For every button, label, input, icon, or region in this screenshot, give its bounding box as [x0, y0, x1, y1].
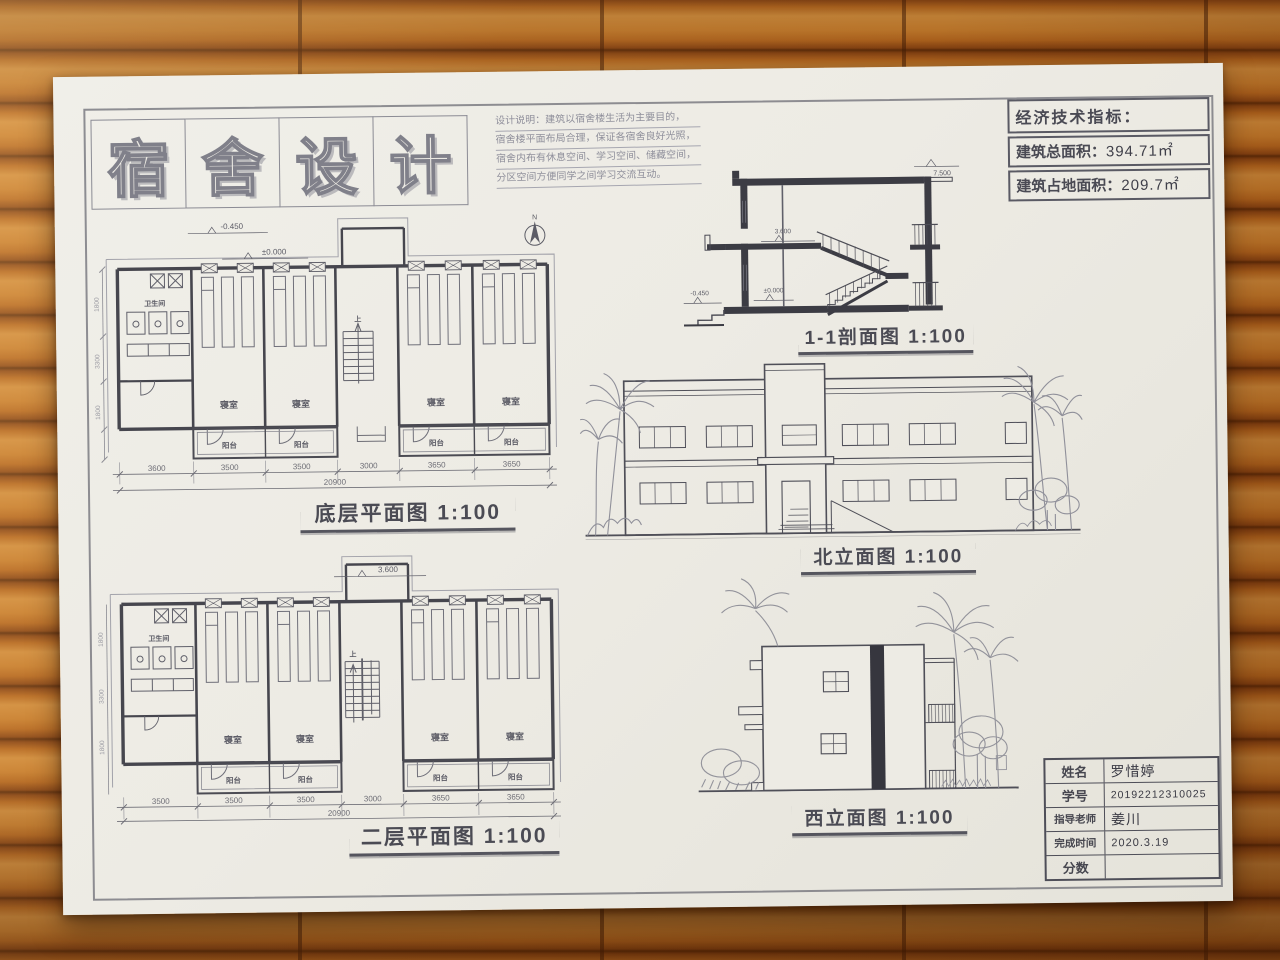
- room-label-bedroom: 寝室: [502, 395, 520, 406]
- dim-value: 3500: [152, 797, 170, 806]
- room-label-balcony: 阳台: [222, 440, 238, 450]
- room-label-bathroom: 卫生间: [144, 299, 165, 308]
- dim-value: 3650: [503, 459, 521, 468]
- stair-up-label: 上: [349, 650, 356, 659]
- dim-left: 3300: [94, 354, 101, 369]
- score-label: 分数: [1047, 855, 1106, 879]
- dim-value: 3000: [360, 461, 378, 470]
- room-label-balcony: 阳台: [298, 774, 314, 784]
- dim-total: 20900: [324, 478, 347, 487]
- room-label-balcony: 阳台: [294, 439, 310, 449]
- title-char-1: 宿: [107, 119, 170, 210]
- dim-value: 3000: [364, 794, 382, 803]
- dim-value: 3600: [148, 464, 166, 473]
- second-floor-plan-drawing: 寝室 寝室 寝室 寝室 阳台 阳台 阳台 阳台 卫生间 上 3.600: [96, 554, 571, 825]
- score-value: [1106, 865, 1219, 866]
- total-area-label: 建筑总面积：: [1016, 143, 1106, 161]
- name-title-block: 姓名 罗惜婷 学号 20192212310025 指导老师 姜川 完成时间 20…: [1043, 756, 1220, 881]
- palm-tree-left: [580, 373, 656, 536]
- completion-date-value: 2020.3.19: [1105, 835, 1218, 848]
- level-minus-0450: -0.450: [220, 222, 243, 231]
- dim-value: 3650: [432, 793, 450, 802]
- north-elevation-drawing: [583, 348, 1080, 544]
- dim-total: 20900: [328, 809, 351, 818]
- section-level-roof: 7.500: [933, 170, 951, 177]
- second-plan-label: 二层平面图 1:100: [349, 819, 559, 857]
- title-char-3: 设: [295, 116, 358, 207]
- room-label-balcony: 阳台: [226, 775, 242, 785]
- ground-plan-label: 底层平面图 1:100: [300, 496, 515, 534]
- dim-left: 1800: [98, 632, 105, 647]
- level-zero: ±0.000: [262, 247, 287, 256]
- room-label-balcony: 阳台: [504, 437, 520, 447]
- room-label-bedroom: 寝室: [220, 399, 238, 410]
- indicators-title: 经济技术指标：: [1007, 97, 1209, 133]
- footprint-area-value: 209.7㎡: [1121, 176, 1180, 194]
- room-label-balcony: 阳台: [429, 437, 445, 447]
- completion-date-label: 完成时间: [1046, 831, 1105, 855]
- west-elevation-drawing: [691, 573, 1024, 799]
- indicators-table: 经济技术指标： 建筑总面积：394.71㎡ 建筑占地面积：209.7㎡: [1007, 97, 1210, 204]
- dim-left: 1800: [94, 297, 101, 312]
- total-area-value: 394.71㎡: [1106, 142, 1174, 160]
- dim-left: 3300: [98, 689, 105, 704]
- palm-tree-right: [1002, 366, 1084, 531]
- dim-left: 1800: [95, 405, 102, 420]
- design-notes: 设计说明：建筑以宿舍楼生活为主要目的， 宿舍楼平面布局合理，保证各宿舍良好光照，…: [495, 108, 702, 189]
- stair-up-label: 上: [354, 314, 361, 323]
- drawing-sheet: 宿 舍 设 计 设计说明：建筑以宿舍楼生活为主要目的， 宿舍楼平面布局合理，保证…: [53, 63, 1233, 915]
- dim-value: 3650: [428, 460, 446, 469]
- name-value: 罗惜婷: [1104, 760, 1217, 781]
- room-label-bedroom: 寝室: [292, 398, 310, 409]
- dim-value: 3500: [221, 463, 239, 472]
- ground-floor-plan-drawing: 寝室 寝室 寝室 寝室 阳台 阳台 阳台 阳台 卫生间 上 -0.450 ±0.…: [92, 211, 568, 507]
- photo-of-drawing: 宿 舍 设 计 设计说明：建筑以宿舍楼生活为主要目的， 宿舍楼平面布局合理，保证…: [0, 0, 1280, 960]
- name-label: 姓名: [1045, 759, 1104, 783]
- footprint-area-label: 建筑占地面积：: [1016, 177, 1121, 195]
- student-id-label: 学号: [1046, 783, 1105, 807]
- dim-value: 3650: [507, 792, 525, 801]
- section-drawing: 7.500 -0.450 ±0.000 3.600: [674, 146, 961, 334]
- room-label-bedroom: 寝室: [427, 396, 445, 407]
- poster-title: 宿 舍 设 计: [90, 115, 468, 210]
- room-label-bedroom: 寝室: [506, 730, 524, 741]
- section-level-floor2: 3.600: [775, 228, 792, 235]
- advisor-value: 姜川: [1105, 807, 1218, 828]
- room-label-bedroom: 寝室: [224, 734, 242, 745]
- dim-value: 3500: [225, 796, 243, 805]
- room-label-balcony: 阳台: [433, 772, 449, 782]
- title-char-4: 计: [389, 115, 452, 206]
- room-label-bedroom: 寝室: [431, 731, 449, 742]
- section-level-ground-offset: -0.450: [690, 290, 709, 297]
- student-id-value: 20192212310025: [1105, 788, 1218, 801]
- dim-value: 3500: [293, 462, 311, 471]
- room-label-bedroom: 寝室: [296, 733, 314, 744]
- room-label-balcony: 阳台: [508, 771, 524, 781]
- north-label: N: [532, 214, 537, 221]
- dim-left: 1800: [99, 740, 106, 755]
- level-3600: 3.600: [378, 565, 399, 574]
- dim-value: 3500: [297, 795, 315, 804]
- advisor-label: 指导老师: [1046, 807, 1105, 831]
- north-arrow-icon: N: [525, 214, 545, 245]
- north-elevation-label: 北立面图 1:100: [801, 541, 976, 575]
- west-elevation-label: 西立面图 1:100: [792, 802, 967, 836]
- title-char-2: 舍: [201, 118, 264, 209]
- room-label-bathroom: 卫生间: [148, 634, 169, 643]
- section-level-zero: ±0.000: [764, 287, 784, 294]
